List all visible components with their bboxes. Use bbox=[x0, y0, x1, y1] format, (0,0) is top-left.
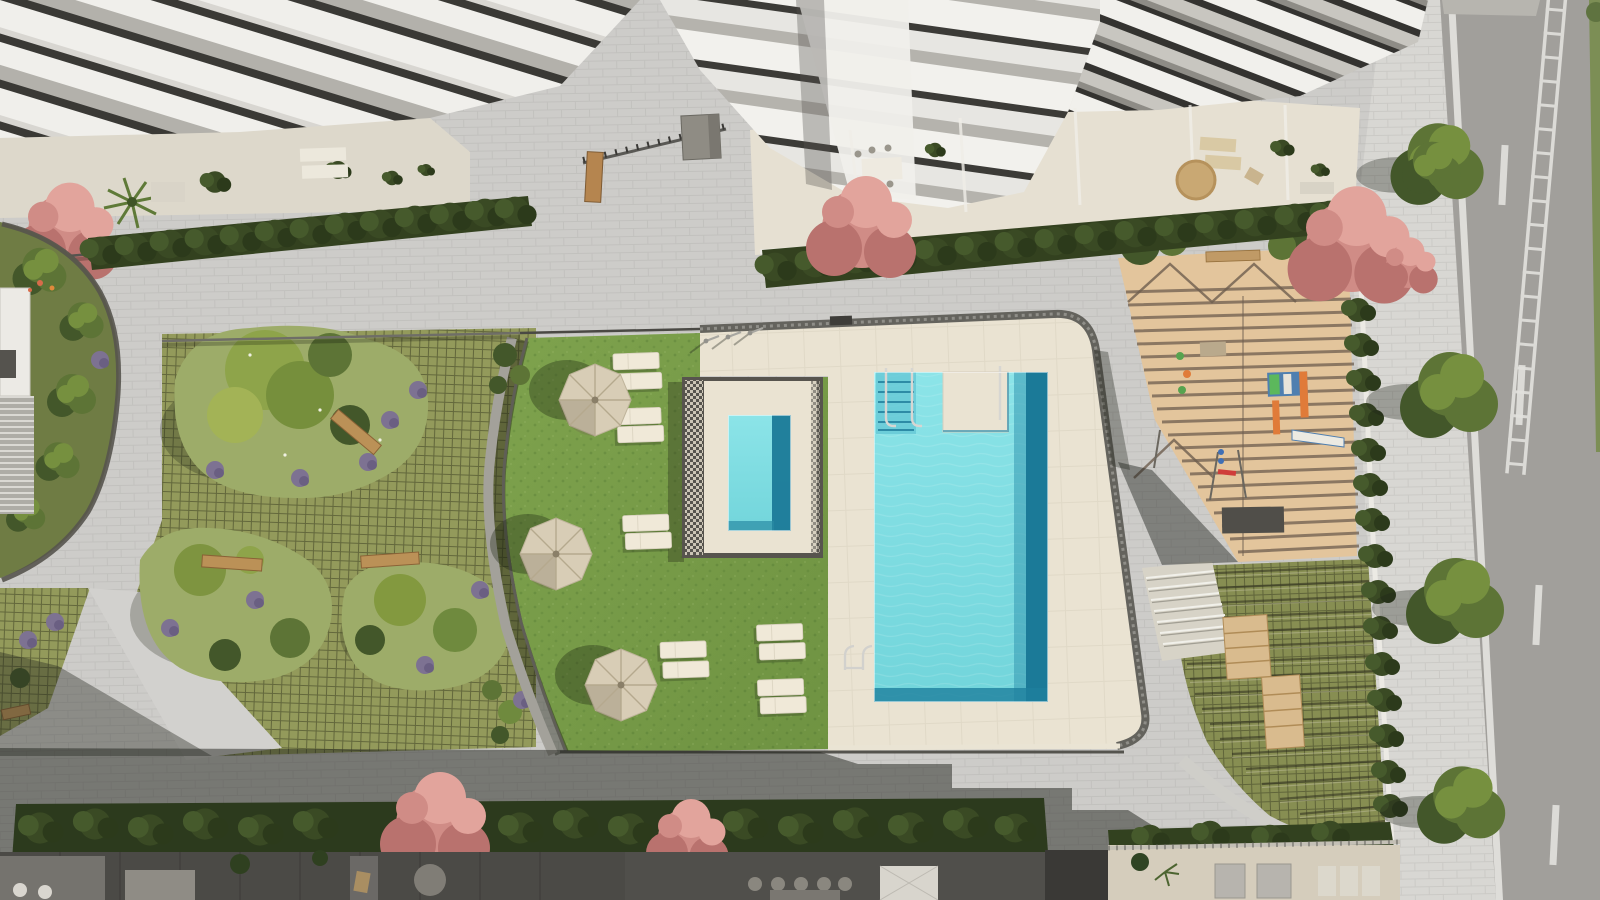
sofa bbox=[1257, 864, 1291, 898]
sofa bbox=[1215, 864, 1245, 898]
aerial-render-stage bbox=[0, 0, 1600, 900]
gate-box bbox=[681, 114, 721, 160]
round-rug bbox=[1177, 161, 1215, 199]
storage-box bbox=[1222, 506, 1284, 533]
courtyard bbox=[0, 314, 1147, 760]
terrace-lounger bbox=[1200, 137, 1237, 152]
wooden-steps bbox=[1223, 615, 1271, 680]
main-pool bbox=[845, 366, 1048, 702]
pool-notch bbox=[943, 372, 1008, 432]
deck-south-wall bbox=[828, 746, 1120, 748]
playground-bench bbox=[1206, 250, 1260, 262]
kids-pool bbox=[668, 377, 823, 562]
wooden-steps bbox=[1262, 675, 1305, 749]
aerial-render bbox=[0, 0, 1600, 900]
pavement-bench bbox=[585, 152, 604, 203]
planting-island-1 bbox=[160, 326, 428, 498]
roof-slab bbox=[1442, 0, 1540, 16]
louvered-roof bbox=[0, 396, 34, 514]
pool-gate bbox=[830, 316, 852, 326]
